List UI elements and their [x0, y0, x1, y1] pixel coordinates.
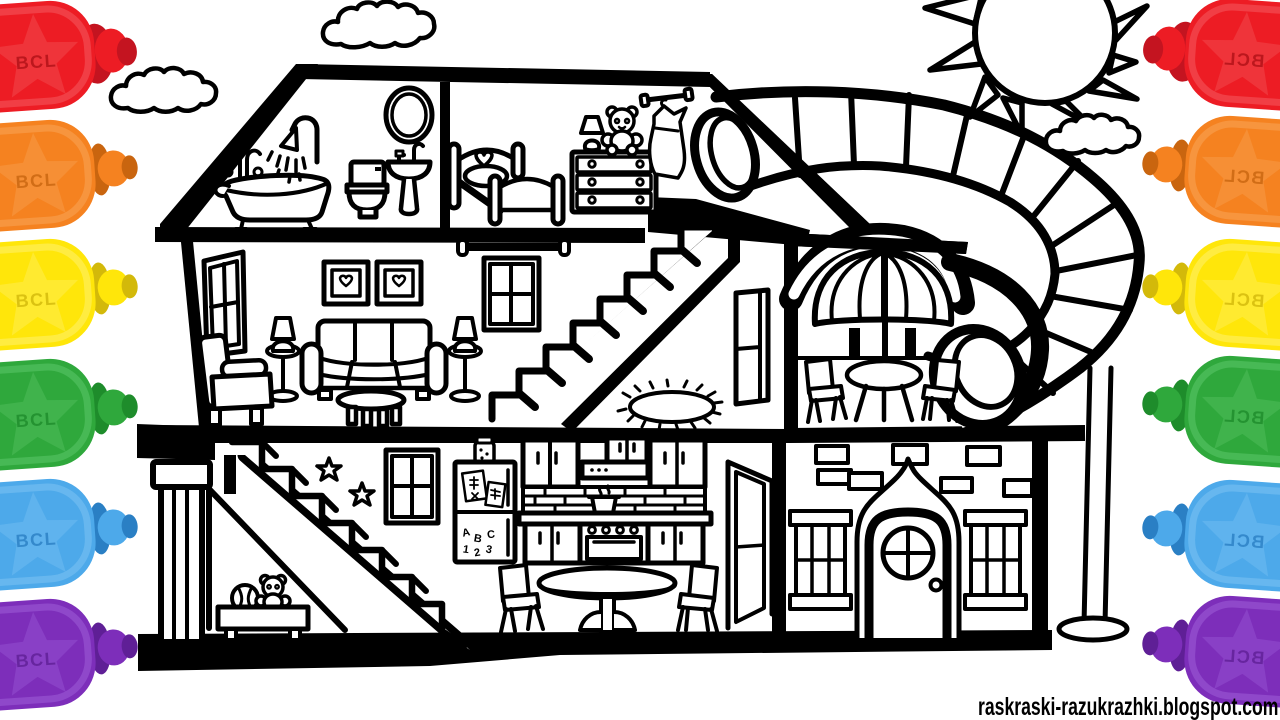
- svg-text:raskraski-razukrazhki.blogspot: raskraski-razukrazhki.blogspot.com: [978, 692, 1278, 720]
- svg-text:BCL: BCL: [15, 648, 58, 671]
- svg-text:BCL: BCL: [15, 169, 58, 192]
- svg-text:BCL: BCL: [15, 408, 58, 431]
- svg-text:BCL: BCL: [15, 528, 58, 551]
- svg-text:BCL: BCL: [15, 50, 58, 73]
- svg-text:BCL: BCL: [15, 288, 58, 311]
- svg-text:C: C: [487, 529, 496, 542]
